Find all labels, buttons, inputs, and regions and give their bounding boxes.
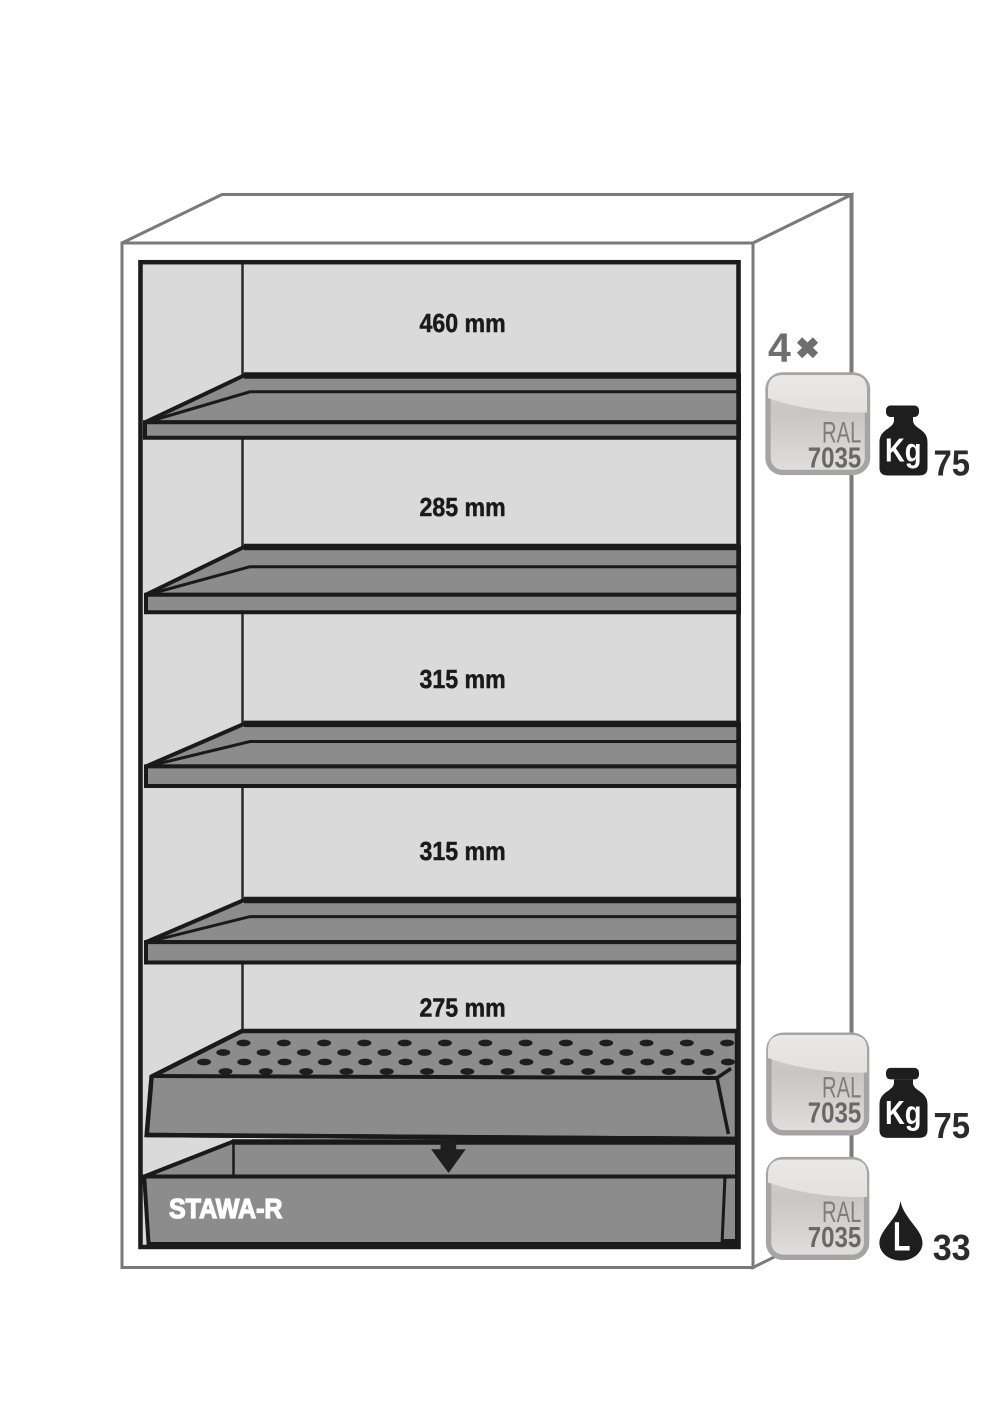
svg-text:7035: 7035 — [808, 1098, 862, 1130]
svg-text:315 mm: 315 mm — [420, 664, 506, 694]
svg-text:Kg: Kg — [885, 1094, 922, 1131]
svg-text:285 mm: 285 mm — [420, 492, 506, 522]
svg-text:L: L — [893, 1214, 911, 1260]
svg-text:STAWA-R: STAWA-R — [169, 1193, 283, 1224]
svg-text:Kg: Kg — [885, 432, 922, 469]
svg-text:315 mm: 315 mm — [420, 836, 506, 866]
svg-text:460 mm: 460 mm — [420, 308, 506, 338]
svg-text:275 mm: 275 mm — [420, 993, 506, 1023]
svg-text:75: 75 — [934, 443, 971, 484]
svg-text:33: 33 — [933, 1227, 971, 1268]
svg-text:7035: 7035 — [808, 1222, 862, 1254]
svg-text:75: 75 — [934, 1105, 971, 1146]
svg-text:4: 4 — [768, 324, 791, 370]
svg-text:7035: 7035 — [808, 443, 862, 475]
